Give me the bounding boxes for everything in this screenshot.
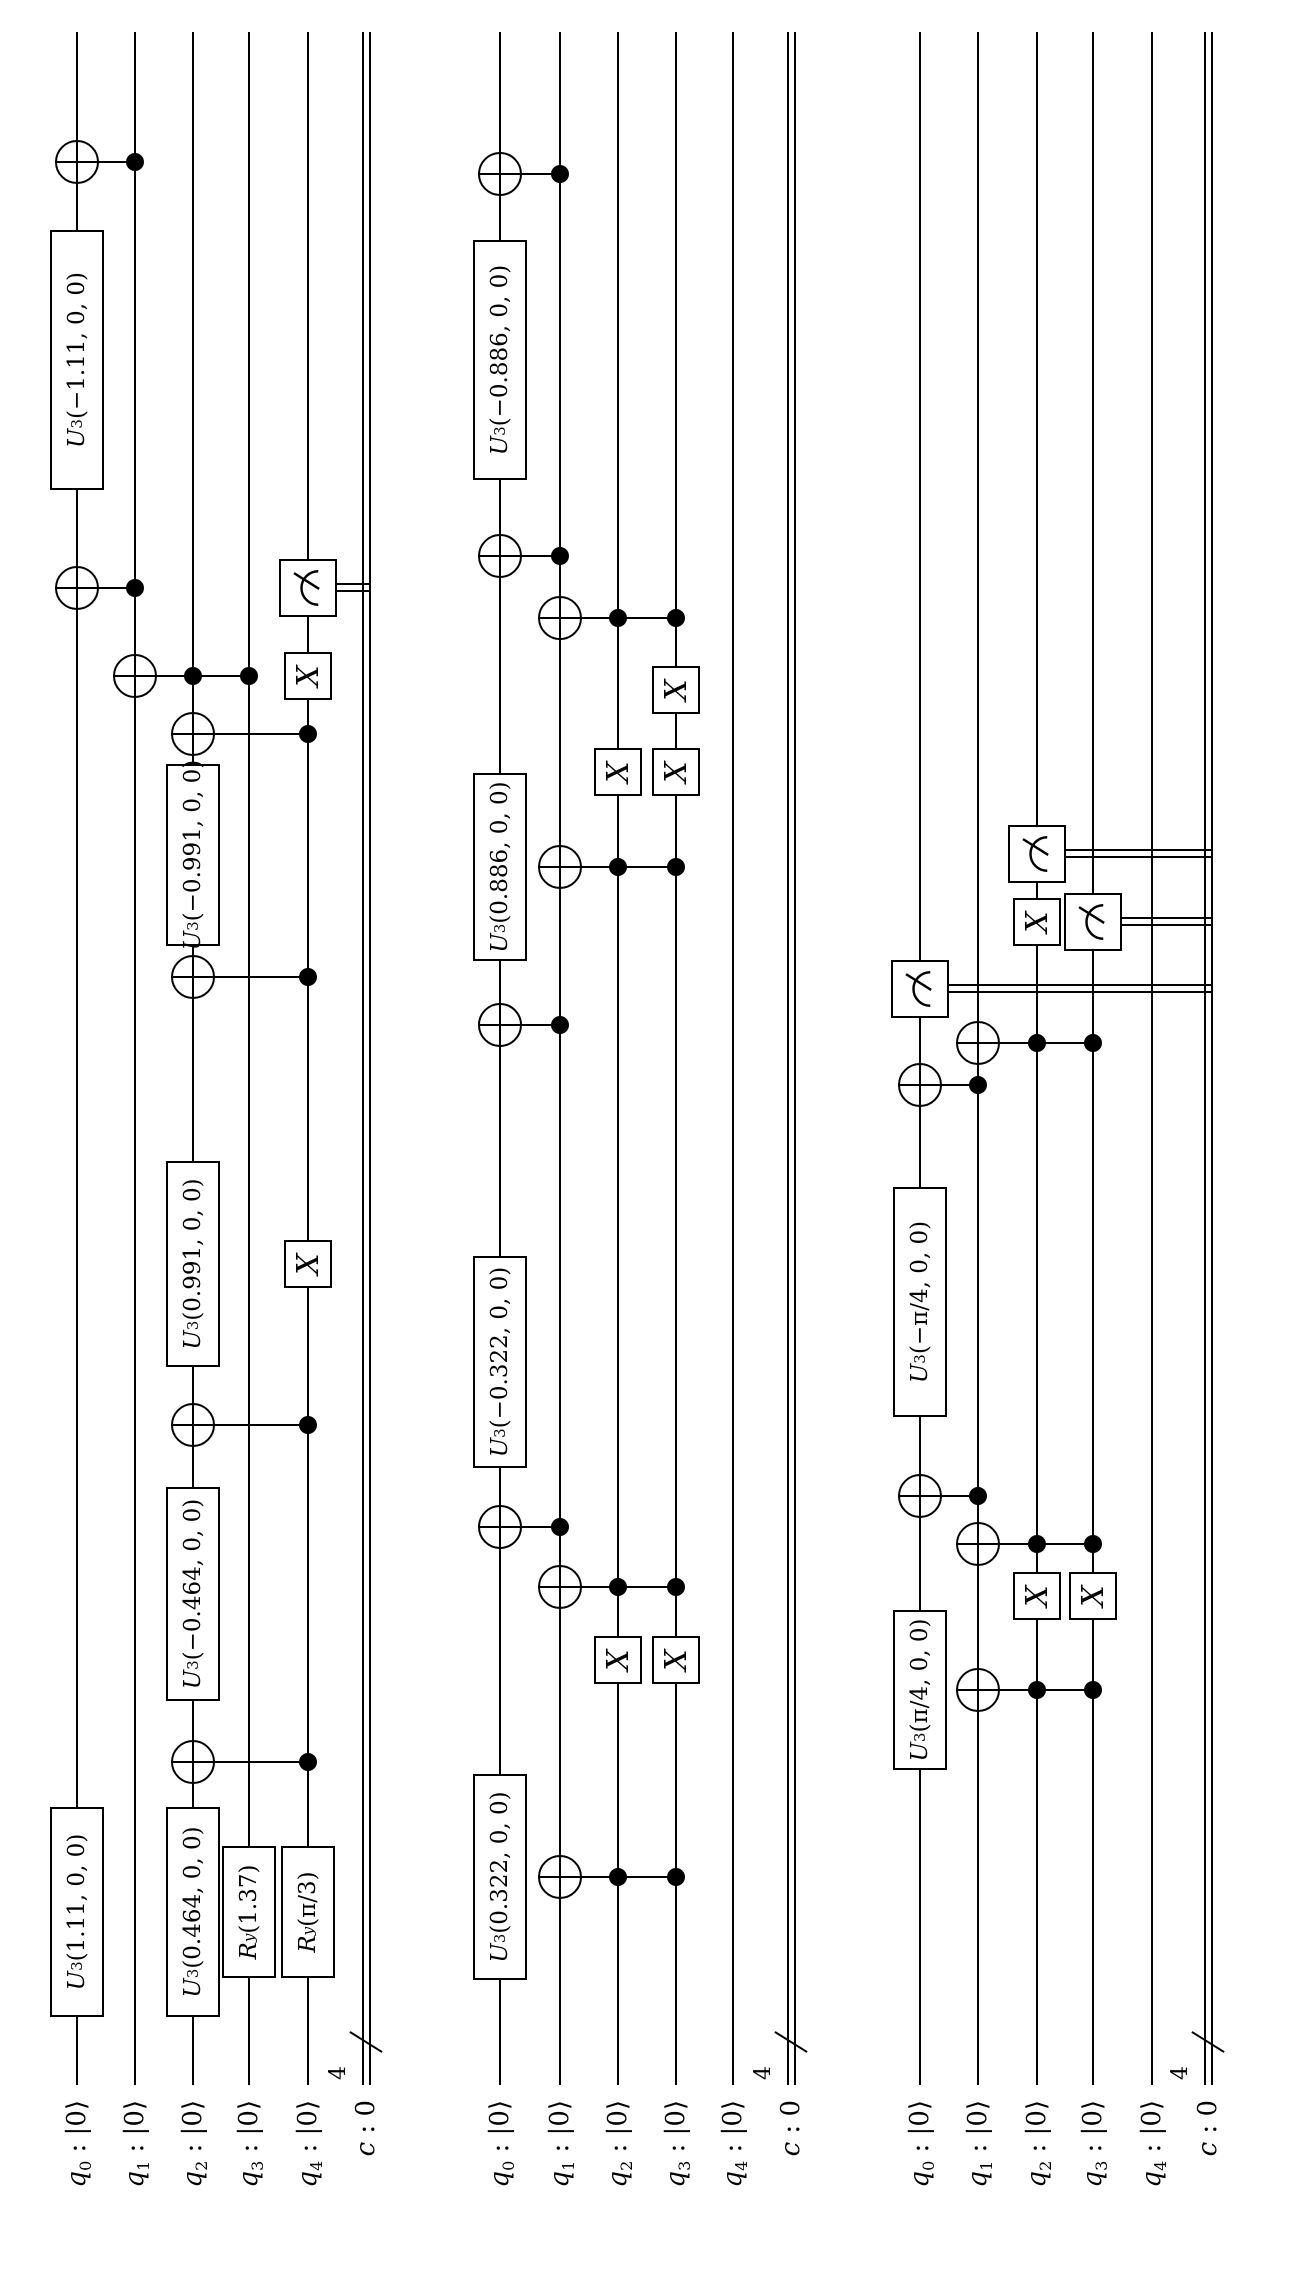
qubit-label: q2 : |0⟩: [1020, 2100, 1054, 2274]
cnot-target-icon: [956, 1021, 1000, 1065]
bundle-size-label: 4: [328, 2066, 350, 2080]
control-dot: [969, 1487, 987, 1505]
cnot-target-icon: [538, 596, 582, 640]
u3-gate: U3(−π/4, 0, 0): [893, 1187, 947, 1417]
control-dot: [551, 1016, 569, 1034]
bundle-size-label: 4: [753, 2066, 775, 2080]
cnot-target-icon: [171, 1740, 215, 1784]
control-dot: [1084, 1034, 1102, 1052]
qubit-wire: [1092, 32, 1094, 2085]
classical-label: c : 0: [349, 2100, 383, 2274]
cnot-target-icon: [898, 1063, 942, 1107]
u3-gate: U3(−1.11, 0, 0): [50, 230, 104, 490]
bundle-size-label: 4: [1170, 2066, 1192, 2080]
cnot-target-icon: [478, 152, 522, 196]
u3-gate: U3(0.322, 0, 0): [473, 1774, 527, 1980]
cnot-target-icon: [171, 1403, 215, 1447]
control-dot: [1028, 1034, 1046, 1052]
control-dot: [667, 1578, 685, 1596]
cnot-target-icon: [171, 955, 215, 999]
quantum-circuit-figure: q0 : |0⟩q1 : |0⟩q2 : |0⟩q3 : |0⟩q4 : |0⟩…: [0, 0, 1306, 2274]
control-dot: [667, 609, 685, 627]
cnot-target-icon: [171, 712, 215, 756]
qubit-wire: [919, 32, 921, 2085]
qubit-label: q3 : |0⟩: [232, 2100, 266, 2274]
qubit-wire: [134, 32, 136, 2085]
qubit-label: q1 : |0⟩: [543, 2100, 577, 2274]
classical-label: c : 0: [774, 2100, 808, 2274]
qubit-wire: [617, 32, 619, 2085]
cnot-target-icon: [478, 1505, 522, 1549]
cnot-target-icon: [956, 1522, 1000, 1566]
measure-classical-line: [1118, 917, 1212, 926]
u3-gate: U3(−0.991, 0, 0): [166, 764, 220, 946]
qubit-label: q3 : |0⟩: [1076, 2100, 1110, 2274]
control-dot: [1028, 1535, 1046, 1553]
control-dot: [609, 858, 627, 876]
x-gate: X: [652, 748, 700, 796]
measure-gate-icon: [1064, 893, 1122, 951]
cnot-target-icon: [55, 140, 99, 184]
u3-gate: U3(−0.464, 0, 0): [166, 1487, 220, 1701]
control-dot: [299, 725, 317, 743]
qubit-wire: [307, 32, 309, 2085]
x-gate: X: [594, 1636, 642, 1684]
qubit-wire: [559, 32, 561, 2085]
u3-gate: U3(π/4, 0, 0): [893, 1610, 947, 1770]
control-dot: [1084, 1535, 1102, 1553]
qubit-wire: [1151, 32, 1153, 2085]
ry-gate: Ry(1.37): [222, 1846, 276, 1978]
qubit-label: q3 : |0⟩: [659, 2100, 693, 2274]
classical-label: c : 0: [1191, 2100, 1225, 2274]
qubit-label: q0 : |0⟩: [483, 2100, 517, 2274]
control-dot: [240, 667, 258, 685]
x-gate: X: [284, 652, 332, 700]
measure-gate-icon: [891, 960, 949, 1018]
control-dot: [551, 1518, 569, 1536]
qubit-label: q1 : |0⟩: [961, 2100, 995, 2274]
x-gate: X: [1013, 1572, 1061, 1620]
x-gate: X: [1013, 898, 1061, 946]
control-dot: [184, 667, 202, 685]
control-dot: [609, 1578, 627, 1596]
cnot-target-icon: [55, 566, 99, 610]
circuit-stage: q0 : |0⟩q1 : |0⟩q2 : |0⟩q3 : |0⟩q4 : |0⟩…: [0, 0, 1306, 2274]
qubit-label: q2 : |0⟩: [176, 2100, 210, 2274]
qubit-label: q2 : |0⟩: [601, 2100, 635, 2274]
x-gate: X: [594, 748, 642, 796]
u3-gate: U3(0.991, 0, 0): [166, 1161, 220, 1367]
x-gate: X: [652, 1636, 700, 1684]
qubit-wire: [1036, 32, 1038, 2085]
cnot-target-icon: [478, 1003, 522, 1047]
measure-classical-line: [1062, 849, 1212, 858]
u3-gate: U3(0.464, 0, 0): [166, 1807, 220, 2017]
cnot-target-icon: [538, 845, 582, 889]
measure-gate-icon: [279, 559, 337, 617]
cnot-target-icon: [956, 1668, 1000, 1712]
control-dot: [299, 968, 317, 986]
classical-wire: [362, 32, 371, 2085]
control-dot: [299, 1416, 317, 1434]
control-dot: [299, 1753, 317, 1771]
control-dot: [126, 579, 144, 597]
qubit-wire: [732, 32, 734, 2085]
qubit-label: q0 : |0⟩: [903, 2100, 937, 2274]
classical-wire: [787, 32, 796, 2085]
qubit-label: q4 : |0⟩: [291, 2100, 325, 2274]
qubit-label: q4 : |0⟩: [716, 2100, 750, 2274]
control-dot: [667, 858, 685, 876]
measure-gate-icon: [1008, 825, 1066, 883]
qubit-wire: [248, 32, 250, 2085]
control-dot: [126, 153, 144, 171]
classical-wire: [1204, 32, 1213, 2085]
cnot-target-icon: [478, 534, 522, 578]
u3-gate: U3(0.886, 0, 0): [473, 773, 527, 961]
control-dot: [1084, 1681, 1102, 1699]
control-dot: [551, 165, 569, 183]
u3-gate: U3(−0.886, 0, 0): [473, 240, 527, 480]
x-gate: X: [652, 666, 700, 714]
control-dot: [667, 1868, 685, 1886]
control-dot: [609, 609, 627, 627]
control-dot: [551, 547, 569, 565]
cnot-target-icon: [538, 1565, 582, 1609]
control-dot: [969, 1076, 987, 1094]
control-dot: [609, 1868, 627, 1886]
cnot-target-icon: [113, 654, 157, 698]
u3-gate: U3(1.11, 0, 0): [50, 1807, 104, 2017]
control-dot: [1028, 1681, 1046, 1699]
measure-classical-line: [333, 583, 370, 592]
cnot-target-icon: [898, 1474, 942, 1518]
cnot-target-icon: [538, 1855, 582, 1899]
qubit-label: q1 : |0⟩: [118, 2100, 152, 2274]
qubit-label: q0 : |0⟩: [60, 2100, 94, 2274]
qubit-label: q4 : |0⟩: [1135, 2100, 1169, 2274]
u3-gate: U3(−0.322, 0, 0): [473, 1256, 527, 1468]
x-gate: X: [1069, 1572, 1117, 1620]
qubit-wire: [675, 32, 677, 2085]
measure-classical-line: [945, 984, 1212, 993]
x-gate: X: [284, 1240, 332, 1288]
ry-gate: Ry(π/3): [281, 1846, 335, 1978]
